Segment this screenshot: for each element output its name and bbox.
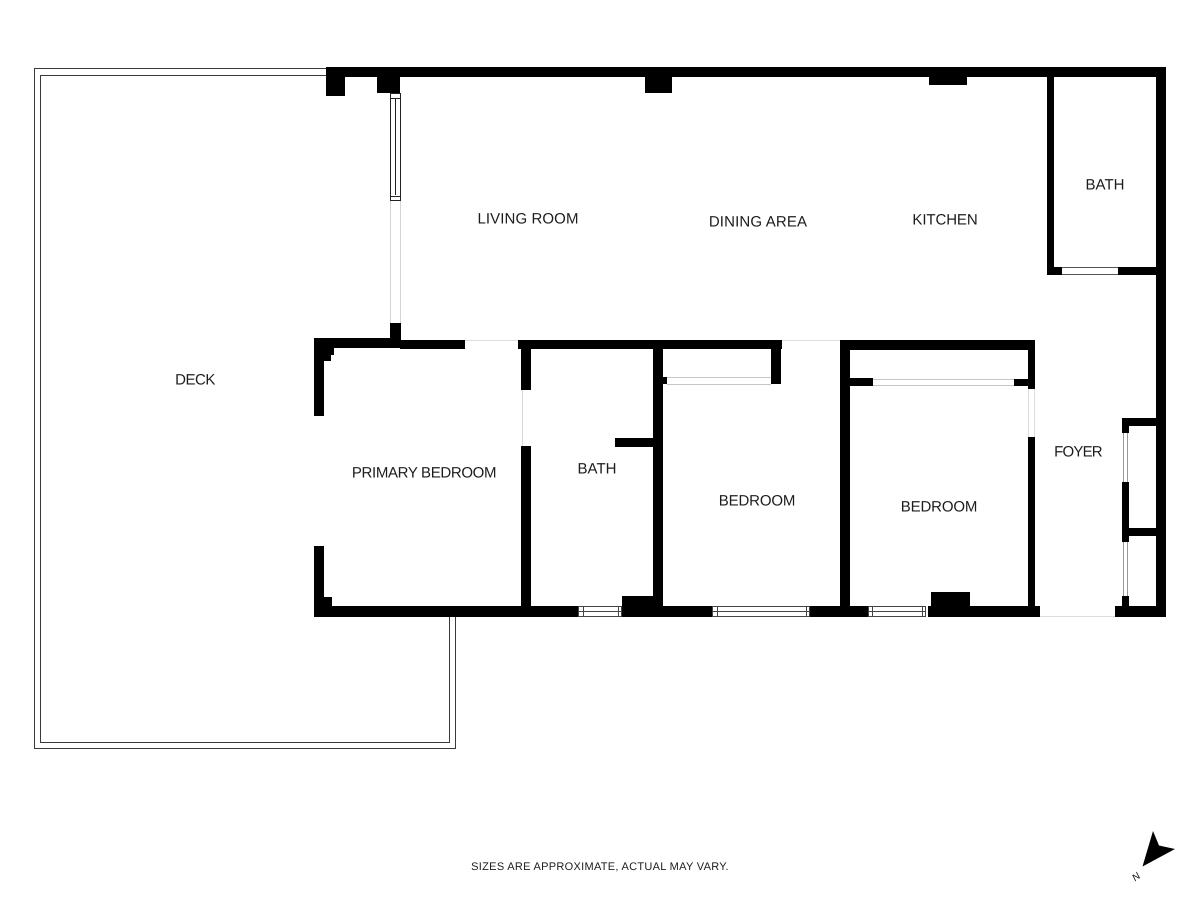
svg-text:N: N [1130, 870, 1143, 884]
